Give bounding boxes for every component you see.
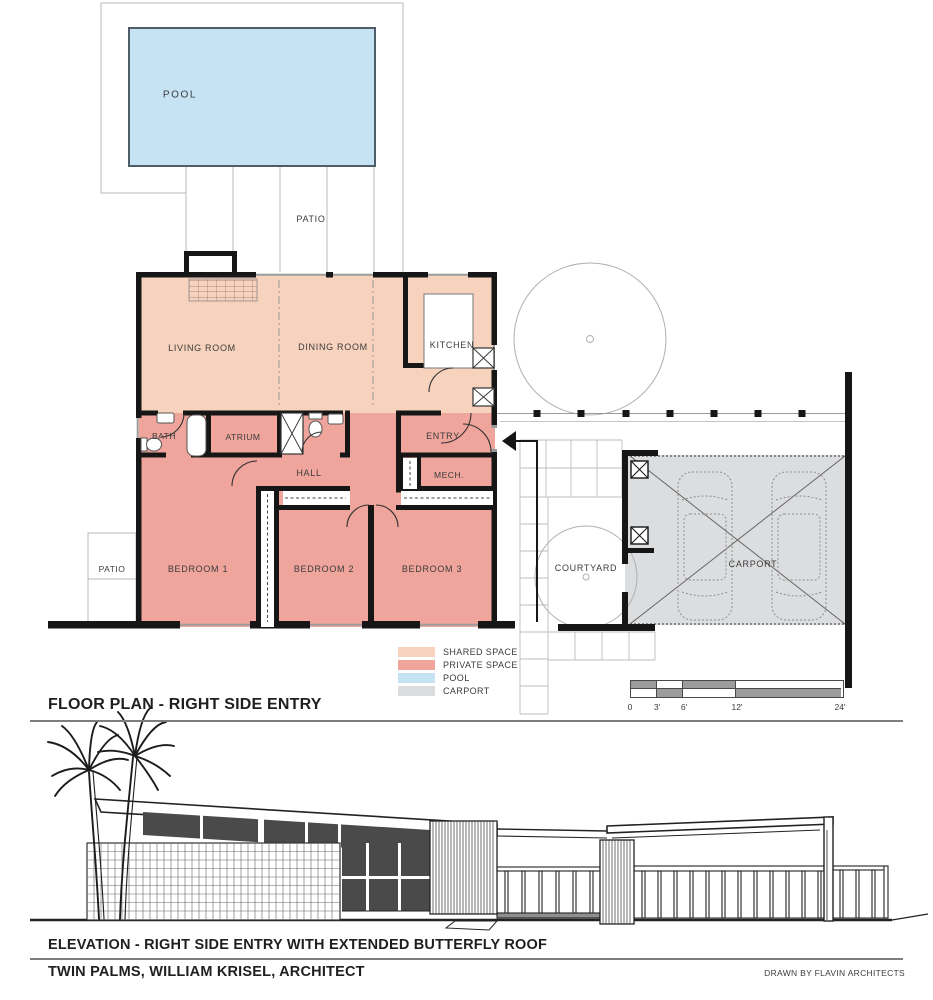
scale-tick: 12' bbox=[731, 702, 742, 712]
room-label-pool: POOL bbox=[163, 90, 197, 101]
room-label-atrium: ATRIUM bbox=[226, 432, 261, 442]
legend-label: POOL bbox=[443, 673, 470, 683]
elevation-title: ELEVATION - RIGHT SIDE ENTRY WITH EXTEND… bbox=[48, 937, 547, 953]
legend-swatch-carport bbox=[398, 686, 435, 696]
room-label-hall: HALL bbox=[296, 468, 321, 478]
room-label-bath: BATH bbox=[152, 431, 176, 441]
divider-rule bbox=[30, 720, 903, 722]
room-label-patio-top: PATIO bbox=[296, 214, 325, 224]
left-patio-paving bbox=[88, 533, 136, 623]
credit-line: DRAWN BY FLAVIN ARCHITECTS bbox=[600, 968, 905, 978]
scale-tick: 0 bbox=[628, 702, 633, 712]
room-label-patio-left: PATIO bbox=[99, 564, 126, 574]
legend-label: CARPORT bbox=[443, 686, 490, 696]
drawing-sheet: POOL PATIO LIVING ROOM DINING ROOM KITCH… bbox=[0, 0, 933, 1000]
room-label-living: LIVING ROOM bbox=[168, 343, 236, 353]
room-label-courtyard: COURTYARD bbox=[555, 563, 617, 573]
floor-plan-title: FLOOR PLAN - RIGHT SIDE ENTRY bbox=[48, 696, 322, 714]
legend-item: POOL bbox=[398, 671, 518, 684]
legend-swatch-shared bbox=[398, 647, 435, 657]
fireplace-hearth bbox=[189, 279, 257, 301]
entry-jamb bbox=[492, 425, 498, 428]
room-label-bedroom1: BEDROOM 1 bbox=[168, 564, 228, 574]
room-label-mech: MECH. bbox=[434, 470, 464, 480]
legend-label: PRIVATE SPACE bbox=[443, 660, 518, 670]
scale-tick: 6' bbox=[681, 702, 687, 712]
floor-plan-and-elevation-drawing bbox=[0, 0, 933, 1000]
shower bbox=[281, 413, 303, 454]
project-title: TWIN PALMS, WILLIAM KRISEL, ARCHITECT bbox=[48, 964, 365, 980]
legend-swatch-pool bbox=[398, 673, 435, 683]
legend-label: SHARED SPACE bbox=[443, 647, 518, 657]
scale-bar bbox=[630, 680, 844, 698]
divider-rule bbox=[30, 958, 903, 960]
room-label-entry: ENTRY bbox=[426, 431, 460, 441]
legend-swatch-private bbox=[398, 660, 435, 670]
legend-item: PRIVATE SPACE bbox=[398, 658, 518, 671]
pergola-posts bbox=[497, 410, 845, 422]
room-label-bedroom3: BEDROOM 3 bbox=[402, 564, 462, 574]
room-label-kitchen: KITCHEN bbox=[430, 340, 474, 350]
tree-circle-courtyard bbox=[535, 526, 637, 628]
scale-tick: 3' bbox=[654, 702, 660, 712]
scale-tick: 24' bbox=[834, 702, 845, 712]
entry-jamb bbox=[492, 449, 498, 452]
tree-circle-large bbox=[514, 263, 666, 415]
legend-item: CARPORT bbox=[398, 684, 518, 697]
room-label-carport: CARPORT bbox=[729, 559, 778, 569]
legend: SHARED SPACE PRIVATE SPACE POOL CARPORT bbox=[398, 645, 518, 697]
room-label-bedroom2: BEDROOM 2 bbox=[294, 564, 354, 574]
legend-item: SHARED SPACE bbox=[398, 645, 518, 658]
elevation-sketch bbox=[30, 708, 928, 930]
room-label-dining: DINING ROOM bbox=[298, 342, 368, 352]
entry-path-arrow bbox=[502, 431, 537, 622]
